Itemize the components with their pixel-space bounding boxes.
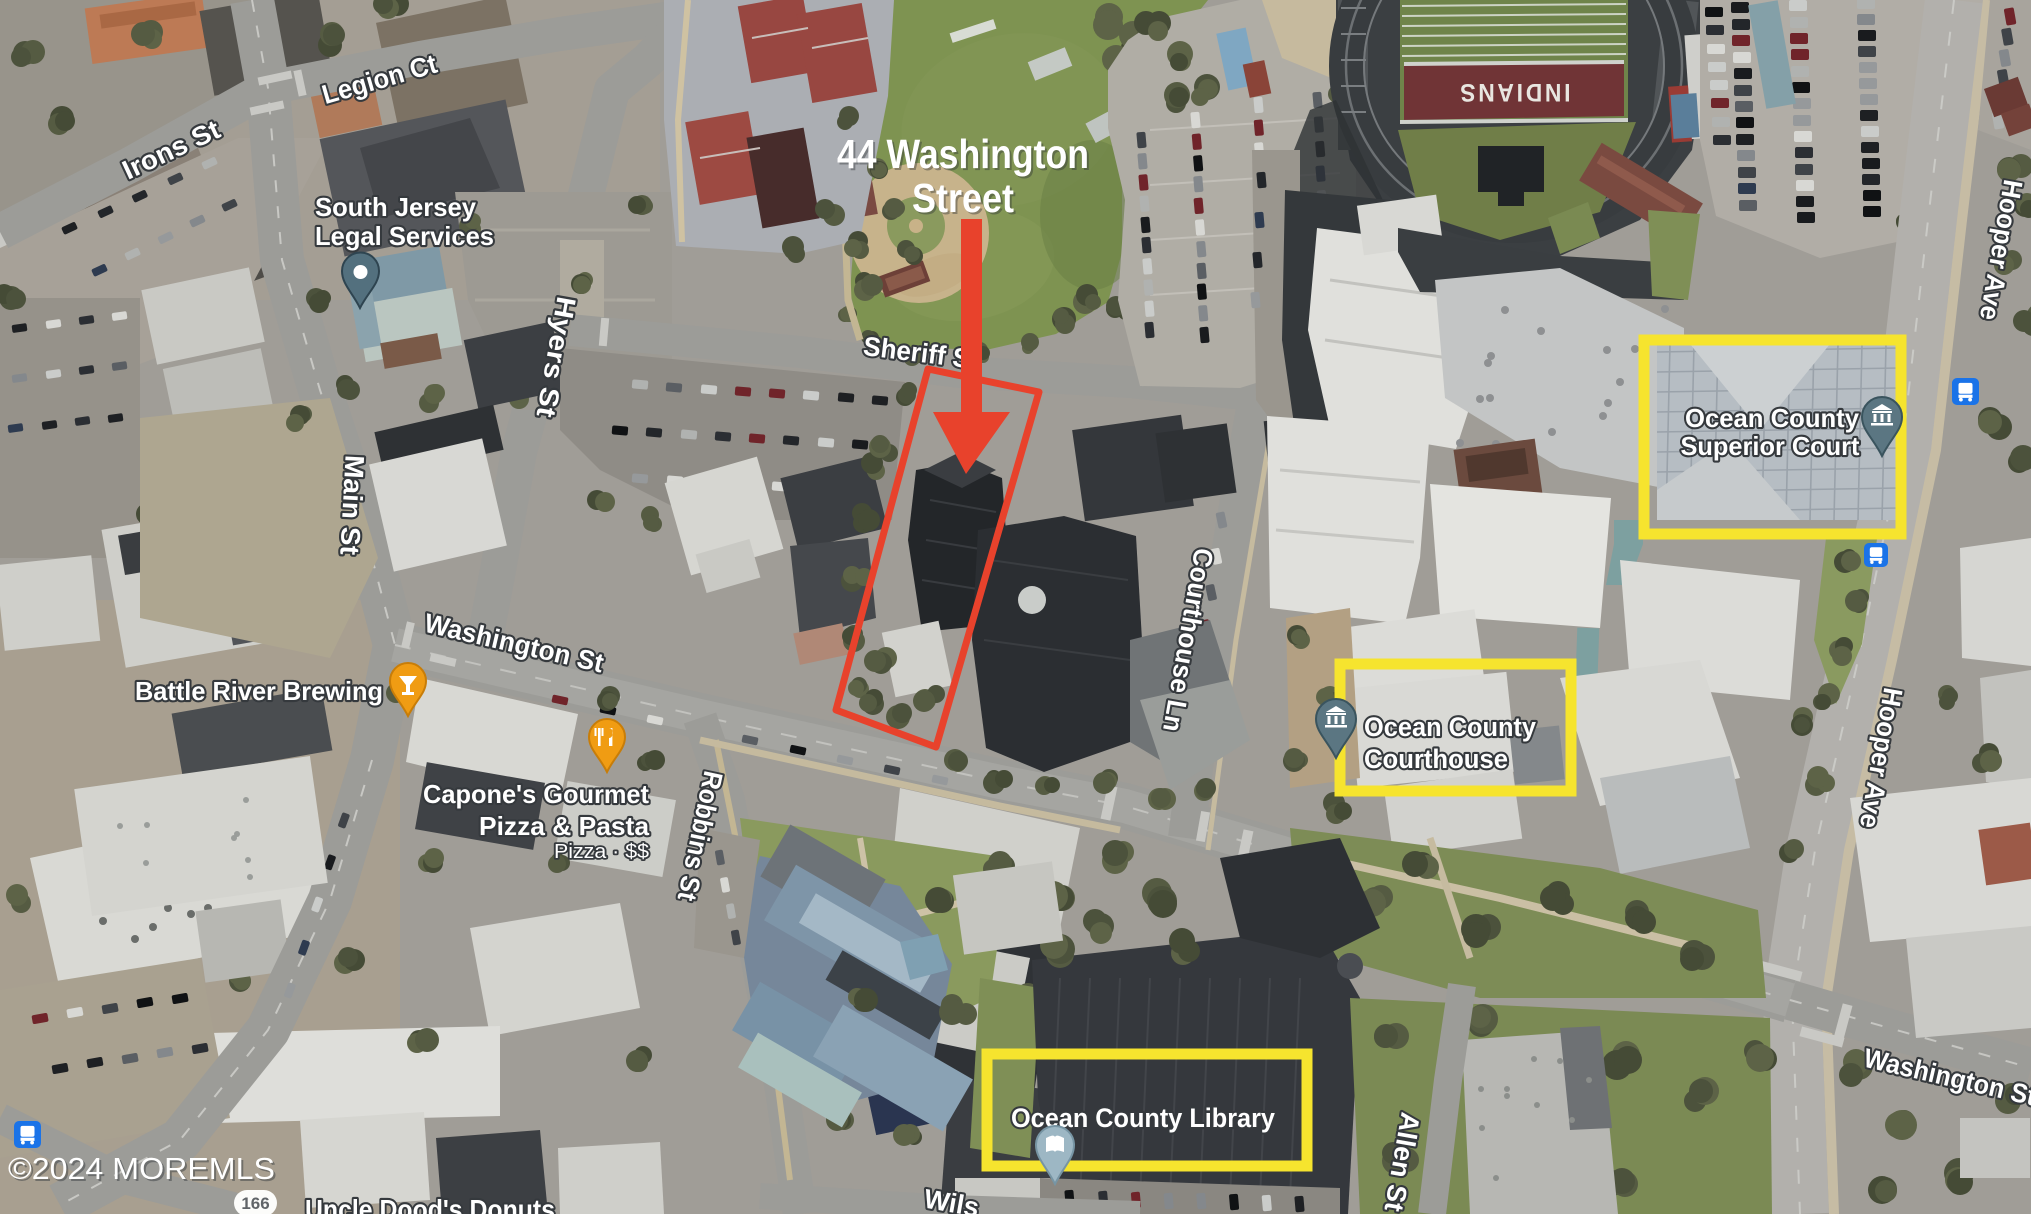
svg-text:©2024 MOREMLS: ©2024 MOREMLS (8, 1151, 275, 1186)
svg-text:Courthouse: Courthouse (1364, 744, 1508, 774)
svg-text:Pizza · $$: Pizza · $$ (554, 841, 649, 863)
svg-text:Uncle Dood's Donuts: Uncle Dood's Donuts (305, 1194, 555, 1214)
svg-text:44 Washington: 44 Washington (837, 131, 1089, 177)
svg-text:INDIANS: INDIANS (1458, 78, 1571, 106)
svg-text:Main St: Main St (334, 454, 369, 555)
svg-text:Street: Street (912, 175, 1014, 221)
svg-text:Pizza & Pasta: Pizza & Pasta (479, 811, 650, 841)
svg-text:South Jersey: South Jersey (315, 192, 477, 222)
svg-text:Capone's Gourmet: Capone's Gourmet (423, 779, 649, 809)
svg-text:166: 166 (241, 1194, 269, 1213)
svg-text:Legal Services: Legal Services (315, 221, 494, 251)
svg-text:Superior Court: Superior Court (1681, 431, 1860, 461)
svg-text:Ocean County: Ocean County (1364, 712, 1536, 742)
svg-text:Ocean County: Ocean County (1685, 403, 1860, 433)
svg-text:Battle River Brewing: Battle River Brewing (135, 676, 383, 706)
